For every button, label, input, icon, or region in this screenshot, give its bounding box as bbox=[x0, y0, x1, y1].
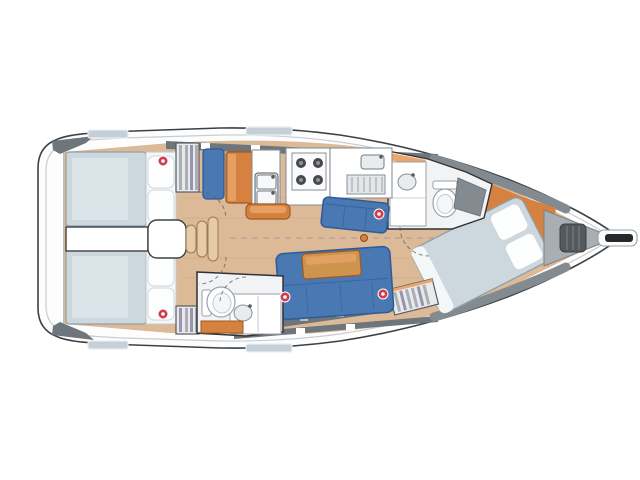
pillow-icon bbox=[148, 254, 174, 286]
berth-highlight bbox=[72, 158, 128, 220]
head-cabinet-orange bbox=[201, 321, 243, 333]
deck-hatch-icon bbox=[246, 344, 292, 352]
floorplan-canvas bbox=[0, 0, 640, 480]
burner-center bbox=[316, 161, 320, 165]
toilet-seat bbox=[437, 195, 453, 214]
drainer bbox=[347, 175, 385, 194]
companionway-hood bbox=[148, 220, 186, 258]
mast-step bbox=[361, 235, 368, 242]
faucet-icon bbox=[271, 191, 275, 195]
hatch-marker-center bbox=[161, 312, 165, 316]
anchor-roller bbox=[605, 234, 633, 242]
burner-center bbox=[299, 161, 303, 165]
forward-head bbox=[388, 151, 492, 229]
deck-fitting bbox=[201, 143, 210, 149]
locker-stripe bbox=[195, 145, 198, 190]
nav-seat bbox=[203, 149, 224, 199]
bowsprit bbox=[598, 230, 637, 246]
toilet-seat bbox=[213, 293, 231, 313]
engine-box bbox=[66, 227, 148, 251]
faucet-icon bbox=[271, 175, 275, 179]
locker-stripe bbox=[179, 145, 182, 190]
port-settee bbox=[276, 246, 394, 320]
burner-center bbox=[299, 178, 303, 182]
hatch-marker-center bbox=[283, 295, 287, 299]
hanging-locker-upper bbox=[176, 143, 199, 192]
companionway-step bbox=[186, 225, 196, 253]
deck-fitting bbox=[346, 324, 355, 330]
companionway-step bbox=[197, 221, 207, 257]
locker-stripe bbox=[185, 308, 188, 332]
faucet-icon bbox=[379, 155, 382, 158]
head-counter bbox=[390, 162, 426, 226]
windlass bbox=[560, 224, 586, 252]
deck-hatch-icon bbox=[88, 130, 128, 138]
companionway-step bbox=[208, 217, 218, 261]
boat-floorplan bbox=[0, 0, 640, 480]
hatch-marker-center bbox=[377, 212, 381, 216]
faucet-icon bbox=[411, 173, 415, 177]
coffee-table-highlight bbox=[250, 206, 286, 213]
chart-table-highlight bbox=[228, 154, 236, 201]
berth-highlight bbox=[72, 256, 128, 318]
hanging-locker-lower bbox=[176, 306, 199, 334]
deck-hatch-icon bbox=[246, 127, 292, 135]
locker-stripe bbox=[190, 145, 193, 190]
galley bbox=[252, 148, 392, 207]
locker-stripe bbox=[190, 308, 193, 332]
deck-fitting bbox=[296, 328, 305, 334]
nav-station bbox=[203, 149, 254, 203]
faucet-icon bbox=[248, 304, 252, 308]
locker-stripe bbox=[185, 145, 188, 190]
mast-step-dot bbox=[361, 235, 368, 242]
hatch-marker-center bbox=[381, 292, 385, 296]
locker-stripe bbox=[179, 308, 182, 332]
hatch-marker-center bbox=[161, 159, 165, 163]
stove-top bbox=[292, 153, 326, 190]
pillow-icon bbox=[148, 190, 174, 222]
burner-center bbox=[316, 178, 320, 182]
toilet-tank bbox=[433, 181, 457, 189]
deck-hatch-icon bbox=[88, 341, 128, 349]
